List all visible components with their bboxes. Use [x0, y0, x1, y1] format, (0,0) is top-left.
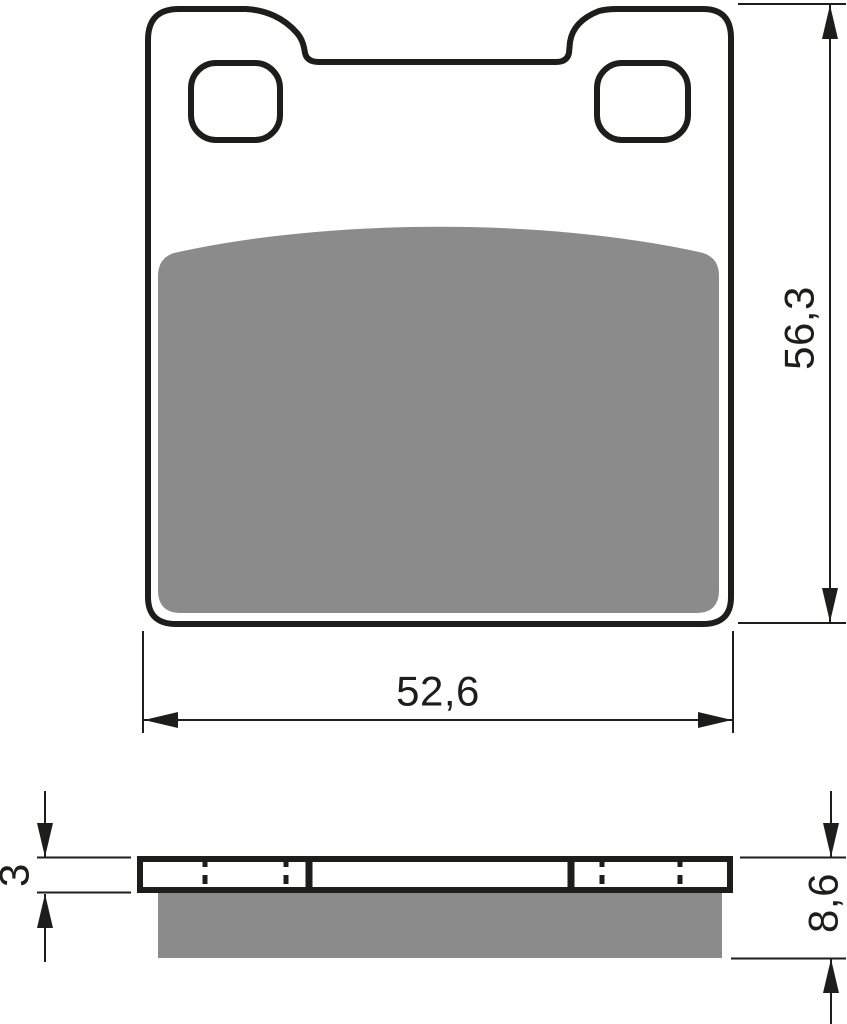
side-view	[140, 856, 730, 958]
dimension-backplate-thickness: 3	[0, 791, 131, 962]
front-view	[148, 9, 731, 624]
dimension-height: 56,3	[738, 4, 846, 623]
overall-thickness-label: 8,6	[800, 873, 847, 933]
arrow-down-icon	[37, 823, 53, 857]
dimension-overall-thickness: 8,6	[731, 791, 847, 1024]
drawing-canvas: 56,3 52,6 3 8,6	[0, 0, 847, 1024]
arrow-up-icon	[823, 959, 839, 993]
width-dimension-label: 52,6	[396, 668, 480, 715]
friction-material-side	[158, 892, 722, 958]
dimension-width: 52,6	[143, 631, 733, 733]
arrow-up-icon	[822, 5, 838, 39]
arrow-left-icon	[144, 712, 178, 728]
arrow-up-icon	[37, 894, 53, 928]
arrow-down-icon	[823, 823, 839, 857]
height-dimension-label: 56,3	[776, 286, 823, 370]
friction-material-front	[158, 227, 719, 613]
arrow-right-icon	[698, 712, 732, 728]
arrow-down-icon	[822, 588, 838, 622]
backplate-thickness-label: 3	[0, 863, 38, 887]
brake-pad-technical-drawing: 56,3 52,6 3 8,6	[0, 0, 847, 1024]
backing-plate-side	[140, 859, 730, 890]
